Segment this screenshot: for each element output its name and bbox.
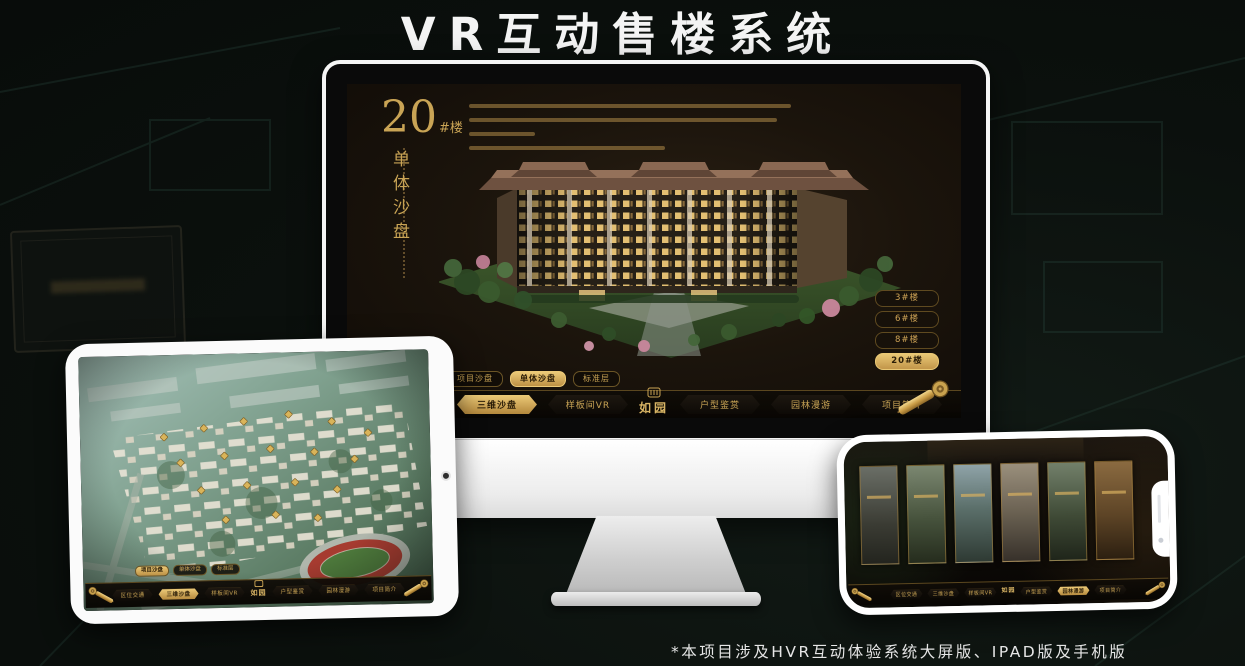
seal-icon <box>647 387 661 398</box>
gallery-panel-3[interactable] <box>954 463 994 563</box>
vr-sales-promo-canvas: VR互动售楼系统 20#楼 单体沙盘 <box>0 0 1245 666</box>
phone-screen: 区位交通 三维沙盘 样板间VR 如园 户型鉴赏 园林漫游 项目简介 <box>843 436 1170 609</box>
phone-camera <box>1158 538 1163 543</box>
scroll-handle-icon[interactable] <box>1143 579 1169 600</box>
gallery-panel-1[interactable] <box>860 465 900 565</box>
gallery-panel-2[interactable] <box>907 464 947 564</box>
aerial-masterplan[interactable] <box>78 349 434 611</box>
nav-item-3d-sandtable[interactable]: 三维沙盘 <box>457 395 537 414</box>
tablet-brand-logo-text: 如园 <box>250 588 266 598</box>
phone-nav-location-traffic[interactable]: 区位交通 <box>890 589 922 599</box>
phone-nav-project-intro[interactable]: 项目简介 <box>1094 585 1126 595</box>
tablet-tab-single-sandtable[interactable]: 单体沙盘 <box>173 564 207 576</box>
phone-nav-garden-roam[interactable]: 园林漫游 <box>1057 586 1089 596</box>
phone-nav-3d-sandtable[interactable]: 三维沙盘 <box>927 589 959 599</box>
phone-brand-logo[interactable]: 如园 <box>1001 584 1015 593</box>
tablet-nav-unit-plans[interactable]: 户型鉴赏 <box>272 585 312 597</box>
tablet-nav-project-intro[interactable]: 项目简介 <box>364 583 404 595</box>
gallery-panel-5[interactable] <box>1048 461 1088 561</box>
floor-button-3[interactable]: 3#楼 <box>875 290 939 307</box>
phone-nav-unit-plans[interactable]: 户型鉴赏 <box>1020 587 1052 597</box>
brand-logo-text: 如园 <box>639 399 669 416</box>
tablet-tab-project-sandtable[interactable]: 项目沙盘 <box>135 565 169 577</box>
scroll-handle-icon[interactable] <box>893 380 959 418</box>
scroll-handle-icon[interactable] <box>847 585 873 606</box>
building-number: 20 <box>381 92 437 143</box>
gallery-panel-6[interactable] <box>1095 460 1135 560</box>
scroll-handle-icon[interactable] <box>83 583 116 608</box>
scroll-handle-icon[interactable] <box>401 576 434 601</box>
footnote-text: *本项目涉及HVR互动体验系统大屏版、IPAD版及手机版 <box>671 640 1127 662</box>
tablet-nav-garden-roam[interactable]: 园林漫游 <box>318 584 358 596</box>
monitor-stand <box>566 516 746 594</box>
view-tab-group: 项目沙盘 单体沙盘 标准层 <box>447 371 620 387</box>
tablet-tab-standard-floor[interactable]: 标准层 <box>211 564 240 576</box>
phone-nav-showroom-vr[interactable]: 样板间VR <box>964 588 996 598</box>
nav-item-unit-plans[interactable]: 户型鉴赏 <box>680 395 760 414</box>
tab-single-sandtable[interactable]: 单体沙盘 <box>510 371 566 387</box>
floor-button-8[interactable]: 8#楼 <box>875 332 939 349</box>
building-number-suffix: #楼 <box>439 121 463 136</box>
decorative-vertical-rule <box>403 148 405 278</box>
floor-button-20[interactable]: 20#楼 <box>875 353 939 370</box>
tablet-camera <box>443 473 449 479</box>
phone-device: 区位交通 三维沙盘 样板间VR 如园 户型鉴赏 园林漫游 项目简介 <box>836 428 1178 615</box>
tablet-nav-showroom-vr[interactable]: 样板间VR <box>204 587 244 599</box>
tablet-nav-location-traffic[interactable]: 区位交通 <box>112 589 152 601</box>
nav-item-showroom-vr[interactable]: 样板间VR <box>548 395 628 414</box>
gallery-panel-4[interactable] <box>1001 462 1041 562</box>
floor-button-group: 3#楼 6#楼 8#楼 20#楼 <box>875 290 939 370</box>
phone-notch <box>1151 481 1170 557</box>
seal-icon <box>254 580 263 587</box>
tablet-screen: 项目沙盘 单体沙盘 标准层 区位交通 三维沙盘 样板间VR 如园 户型鉴赏 园林… <box>78 349 434 611</box>
tablet-brand-logo[interactable]: 如园 <box>250 580 266 598</box>
tablet-nav-3d-sandtable[interactable]: 三维沙盘 <box>158 588 198 600</box>
nav-item-garden-roam[interactable]: 园林漫游 <box>771 395 851 414</box>
building-3d-model[interactable] <box>439 150 901 368</box>
background-plaque <box>10 225 186 353</box>
brand-logo[interactable]: 如园 <box>639 387 669 416</box>
page-title: VR互动售楼系统 <box>0 0 1245 63</box>
building-subtitle: 单体沙盘 <box>387 150 412 246</box>
monitor-base <box>551 592 761 606</box>
tablet-device: 项目沙盘 单体沙盘 标准层 区位交通 三维沙盘 样板间VR 如园 户型鉴赏 园林… <box>65 336 459 625</box>
phone-nav-bar: 区位交通 三维沙盘 样板间VR 如园 户型鉴赏 园林漫游 项目简介 <box>848 578 1168 606</box>
tab-standard-floor[interactable]: 标准层 <box>573 371 620 387</box>
phone-speaker <box>1157 495 1161 523</box>
floor-button-6[interactable]: 6#楼 <box>875 311 939 328</box>
gallery-panel-row <box>860 460 1135 565</box>
tab-project-sandtable[interactable]: 项目沙盘 <box>447 371 503 387</box>
phone-brand-logo-text: 如园 <box>1001 584 1015 593</box>
